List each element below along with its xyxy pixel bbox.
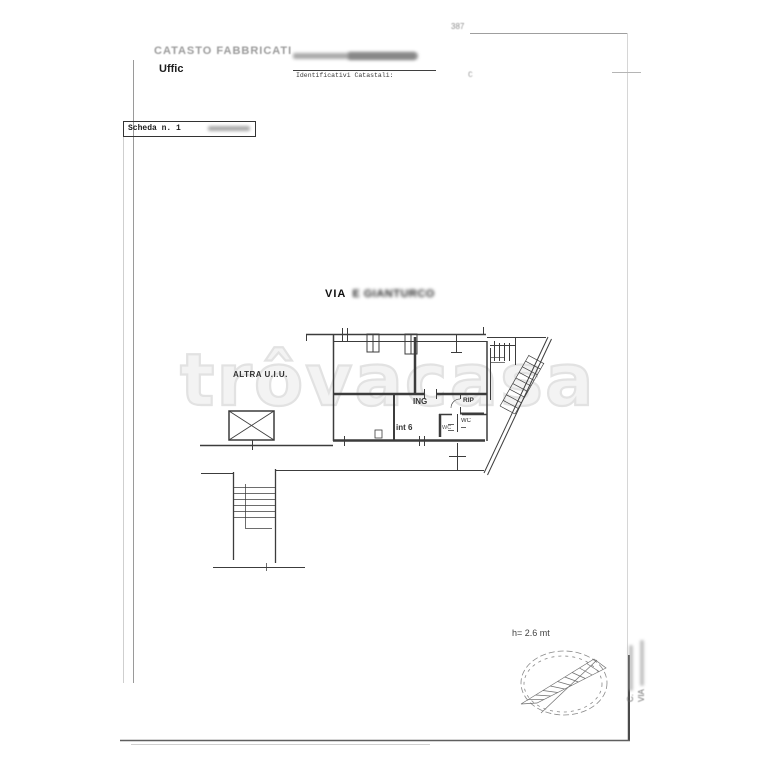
room-label-int6: int 6 xyxy=(396,423,412,432)
redacted-side-text xyxy=(629,645,633,691)
street-caption: VIAE GIANTURCO xyxy=(325,288,435,300)
surveyor-stamp-icon xyxy=(521,651,607,715)
diagonal-wall-and-stair xyxy=(484,337,552,475)
page-border-lines xyxy=(120,33,641,745)
street-prefix: VIA xyxy=(325,288,346,300)
side-note-line2-text: VIA xyxy=(637,689,646,702)
street-name-blurred: E GIANTURCO xyxy=(352,288,435,300)
room-label-altra-uiu: ALTRA U.I.U. xyxy=(233,370,288,379)
ceiling-height-note: h= 2.6 mt xyxy=(512,628,550,638)
redacted-address-line-dark xyxy=(348,52,416,60)
room-label-ing: ING xyxy=(413,397,427,406)
side-note-line1: C. xyxy=(626,645,635,702)
stairwell-lines xyxy=(201,469,484,571)
room-label-wc-small: WC xyxy=(442,425,451,431)
redacted-scheda-text xyxy=(208,126,250,131)
scanned-cadastral-document: trôvacasa xyxy=(0,0,768,768)
side-note-line2: VIA xyxy=(637,640,646,702)
office-label: Uffic xyxy=(159,63,183,75)
corner-note: 387 xyxy=(451,22,464,31)
scheda-label: Scheda n. 1 xyxy=(128,124,181,133)
redacted-side-text2 xyxy=(640,640,644,686)
catastal-identifiers-value: C xyxy=(468,71,473,80)
document-title: CATASTO FABBRICATI xyxy=(154,45,292,57)
floor-plan-drawing xyxy=(0,0,768,768)
room-label-wc: WC xyxy=(461,418,471,424)
catastal-identifiers-label: Identificativi Catastali: xyxy=(296,72,394,79)
left-unit-lines xyxy=(200,411,333,450)
side-note-line1-text: C. xyxy=(626,694,635,702)
room-label-rip: RIP xyxy=(463,397,474,404)
